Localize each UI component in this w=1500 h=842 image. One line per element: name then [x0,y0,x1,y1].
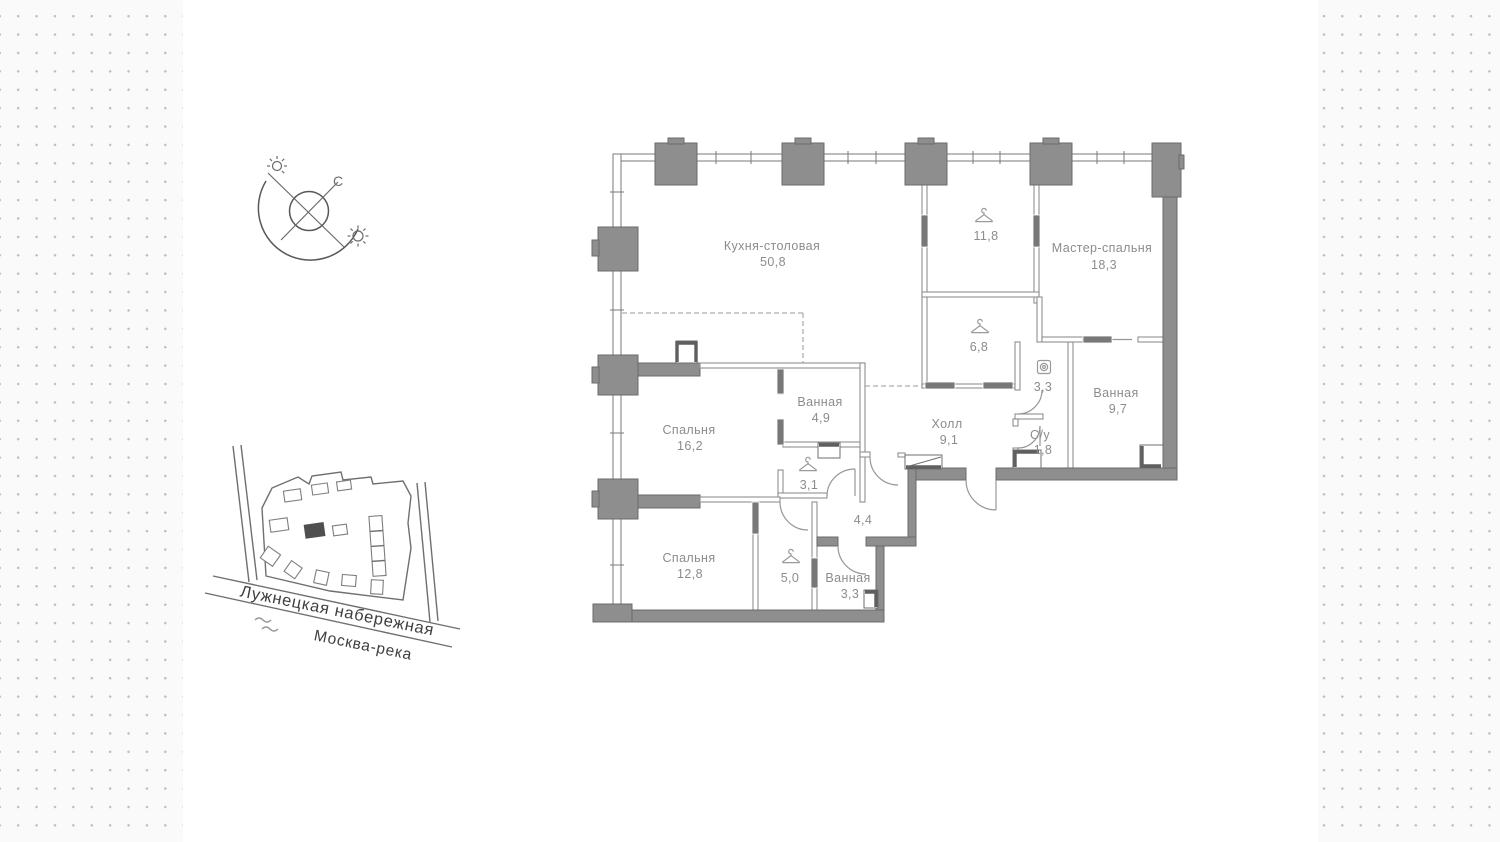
map-buildings [260,480,386,594]
room-label: Ванная [825,571,870,585]
river-label: Москва-река [312,627,413,664]
room-area: 9,7 [1109,402,1128,416]
room-label: Кухня-столовая [724,239,820,253]
room-area: 3,3 [1034,380,1053,394]
room-area: 18,3 [1091,258,1117,272]
room-area: 9,1 [940,433,959,447]
room-label: Спальня [662,551,715,565]
room-label: Холл [931,417,962,431]
site-map: Лужнецкая набережная Москва-река [205,445,460,664]
sun-icon [267,156,287,173]
room-area: 3,1 [800,478,819,492]
room-area: 4,9 [812,411,831,425]
washing-machine-icon [1038,361,1051,374]
floor-plan: Кухня-столовая 50,8 11,8 Мастер-спальня … [592,138,1184,622]
compass-arc [258,181,358,260]
structural-columns [592,138,1184,519]
shaft-hall [905,455,942,469]
room-area: 5,0 [781,571,800,585]
hanger-icon [800,457,816,470]
hanger-icon [783,549,799,562]
shaft-bath-33 [864,590,878,608]
room-area: 12,8 [677,567,703,581]
floorplan-page: С [0,0,1500,842]
compass-north-label: С [333,173,343,189]
shaft-bath-97 [1140,445,1163,468]
room-area: 11,8 [973,229,998,243]
water-waves-icon [255,618,278,631]
room-label: Спальня [662,423,715,437]
shaft-wardrobe-31 [818,443,840,458]
room-area: 6,8 [970,340,989,354]
hanger-icon [972,319,988,332]
room-label: Ванная [797,395,842,409]
shaft-kitchen [676,341,697,363]
room-area: 1,8 [1034,443,1053,457]
room-area: 3,3 [841,587,860,601]
room-area: 50,8 [760,255,786,269]
room-label: С/у [1030,428,1050,442]
room-area: 4,4 [854,513,873,527]
sun-icon [348,226,369,247]
floorplan-svg: С [0,0,1500,842]
compass-rose: С [258,156,368,260]
map-current-building [304,523,325,539]
map-building-tower [369,516,386,577]
room-label: Мастер-спальня [1052,241,1152,255]
room-label: Ванная [1093,386,1138,400]
hanger-icon [976,208,992,221]
room-area: 16,2 [677,439,703,453]
